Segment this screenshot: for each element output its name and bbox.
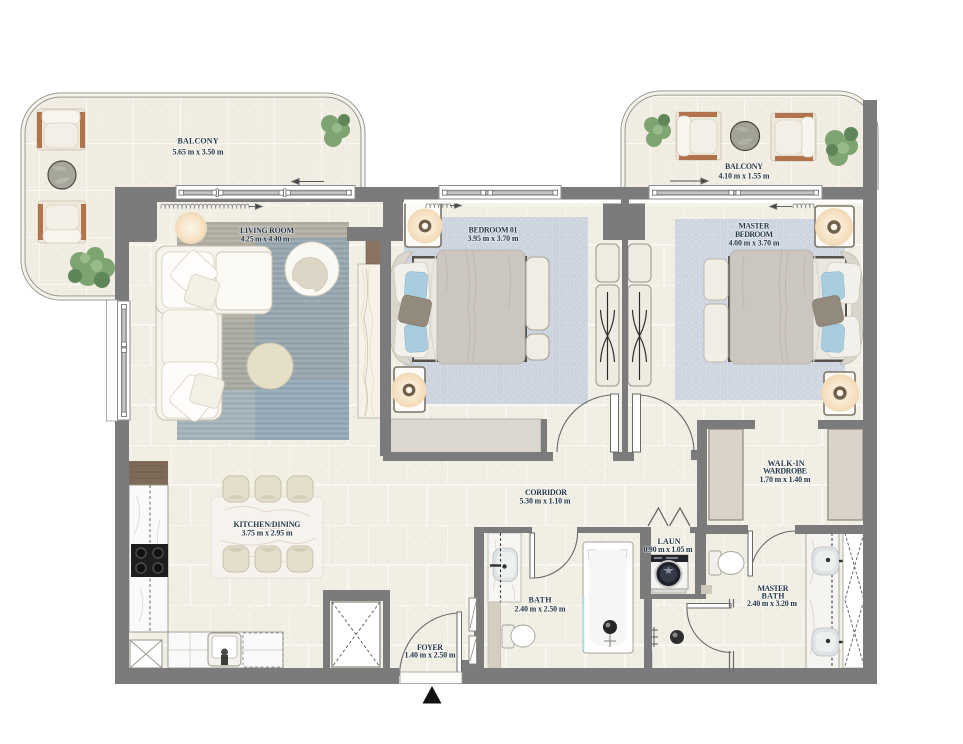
svg-text:BATH: BATH [529, 596, 553, 605]
svg-text:4.25 m x 4.40 m: 4.25 m x 4.40 m [241, 235, 290, 244]
svg-text:BALCONY: BALCONY [725, 162, 763, 171]
svg-text:5.30 m x 1.10 m: 5.30 m x 1.10 m [520, 497, 571, 506]
svg-text:4.00 m x 3.70 m: 4.00 m x 3.70 m [729, 239, 780, 248]
svg-text:1.40 m x 2.50 m: 1.40 m x 2.50 m [405, 651, 456, 660]
svg-text:3.75 m x 2.95 m: 3.75 m x 2.95 m [242, 529, 293, 538]
svg-text:5.65 m x 3.50 m: 5.65 m x 3.50 m [173, 148, 224, 157]
svg-text:2.40 m x 3.20 m: 2.40 m x 3.20 m [747, 599, 797, 608]
svg-text:3.95 m x 3.70 m: 3.95 m x 3.70 m [468, 234, 519, 243]
svg-text:1.70 m x 1.40 m: 1.70 m x 1.40 m [760, 475, 811, 484]
svg-text:0.90 m x 1.05 m: 0.90 m x 1.05 m [644, 545, 693, 554]
svg-text:4.10 m x 1.55 m: 4.10 m x 1.55 m [719, 172, 770, 181]
svg-text:2.40 m x 2.50 m: 2.40 m x 2.50 m [515, 605, 566, 614]
svg-text:BALCONY: BALCONY [178, 137, 219, 146]
